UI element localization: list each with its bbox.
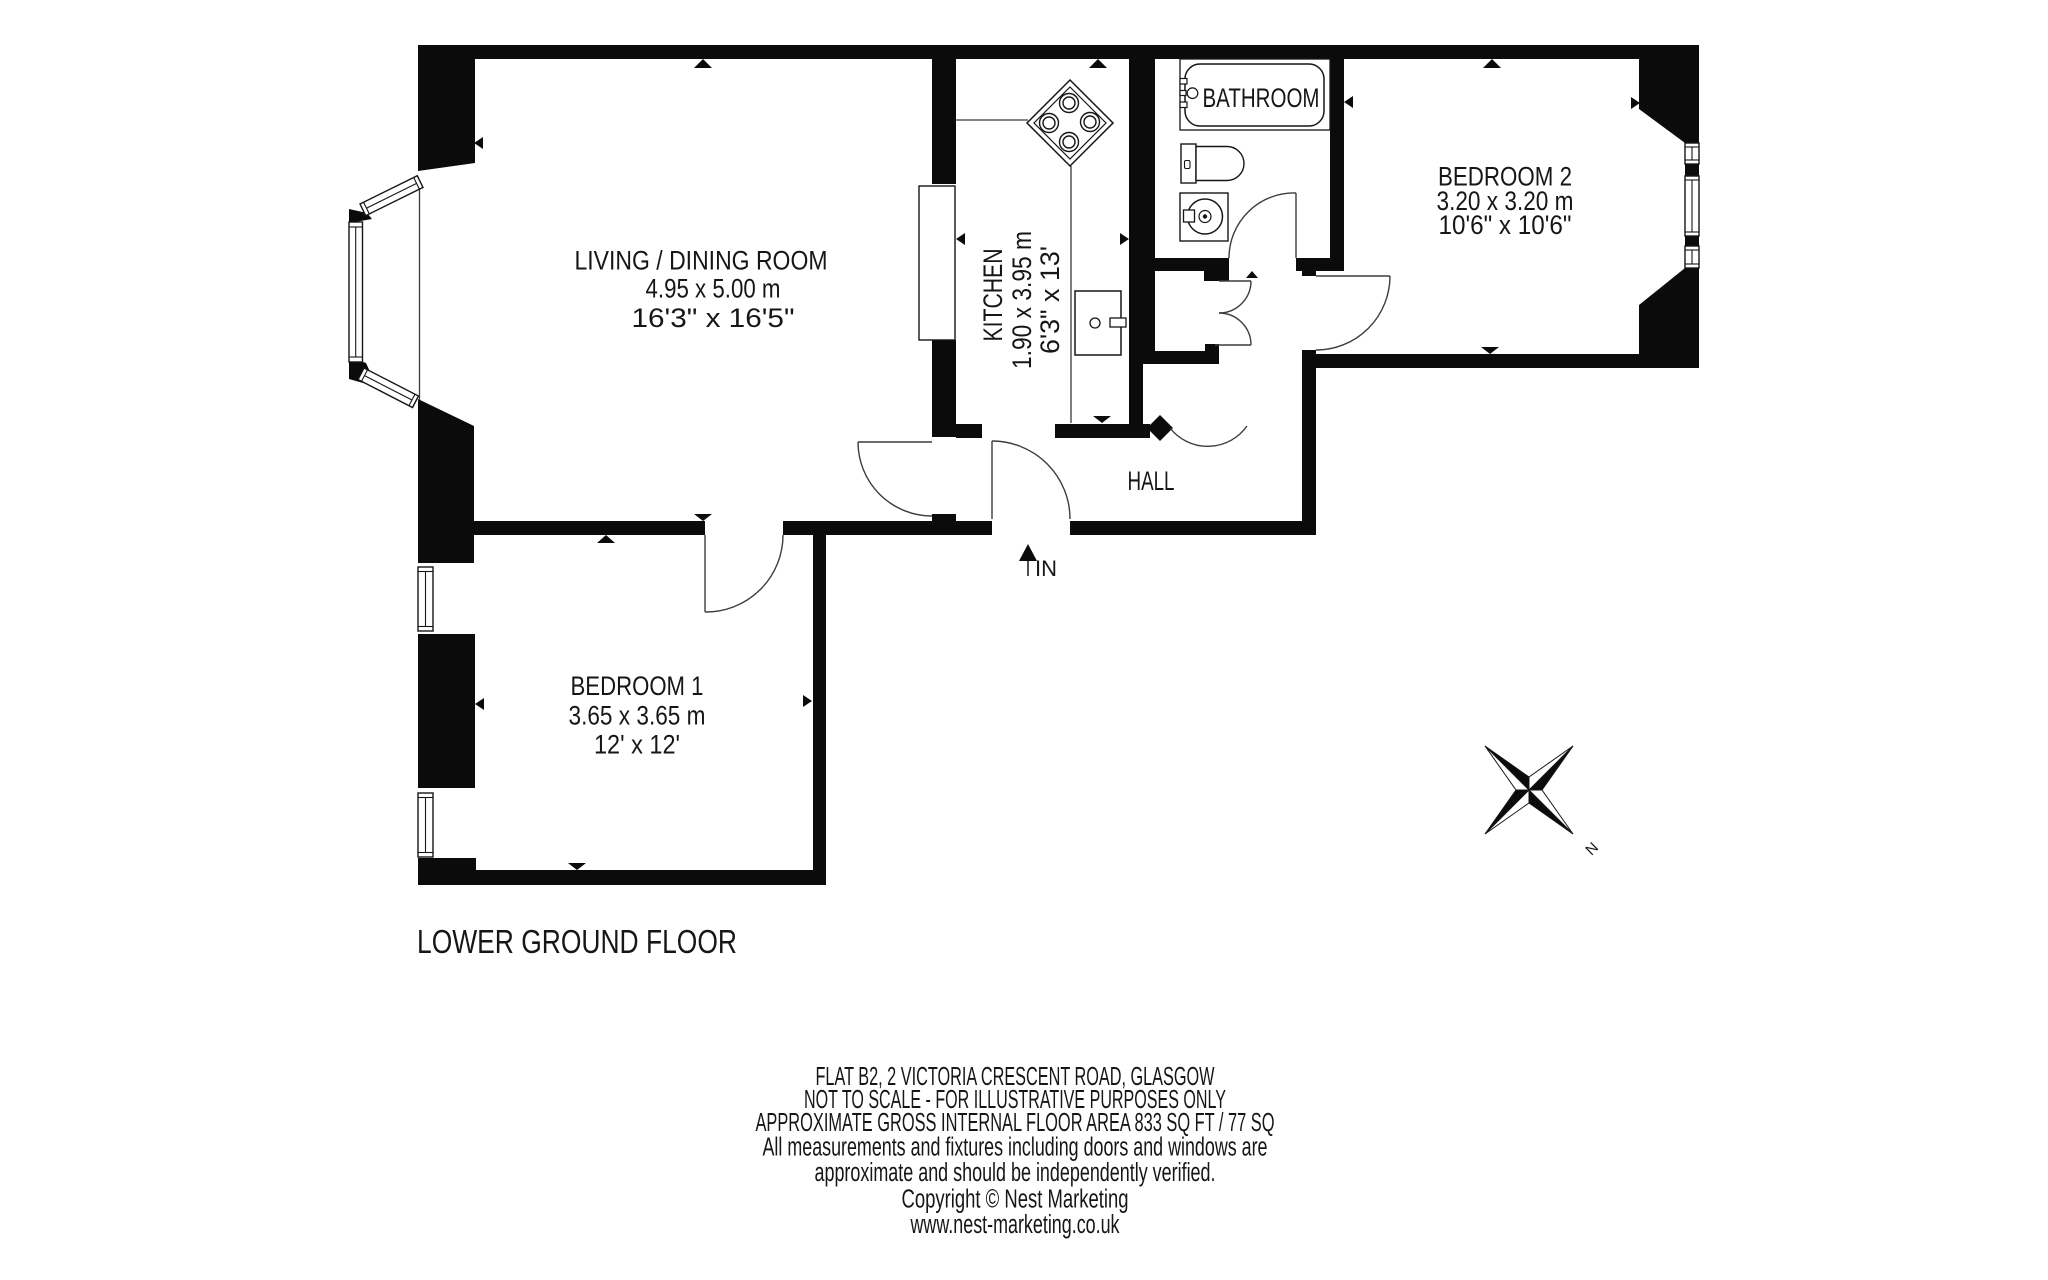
svg-text:16'3" x 16'5": 16'3" x 16'5" (632, 303, 795, 333)
svg-text:HALL: HALL (1128, 466, 1175, 496)
svg-text:3.65 x 3.65 m: 3.65 x 3.65 m (569, 701, 706, 731)
svg-text:4.95 x 5.00 m: 4.95 x 5.00 m (646, 274, 781, 304)
svg-text:All measurements and fixtures: All measurements and fixtures including … (763, 1134, 1268, 1162)
svg-text:BATHROOM: BATHROOM (1203, 83, 1320, 113)
svg-text:BEDROOM 1: BEDROOM 1 (571, 671, 704, 701)
svg-text:6'3" x 13': 6'3" x 13' (1035, 246, 1065, 354)
svg-text:IN: IN (1035, 556, 1057, 581)
svg-text:www.nest-marketing.co.uk: www.nest-marketing.co.uk (910, 1211, 1120, 1239)
svg-text:KITCHEN: KITCHEN (978, 249, 1008, 342)
svg-text:1.90 x 3.95 m: 1.90 x 3.95 m (1007, 231, 1037, 369)
svg-text:12' x 12': 12' x 12' (594, 730, 680, 760)
svg-text:10'6" x 10'6": 10'6" x 10'6" (1439, 210, 1572, 240)
svg-text:Copyright © Nest Marketing: Copyright © Nest Marketing (902, 1186, 1129, 1214)
svg-text:LIVING / DINING ROOM: LIVING / DINING ROOM (575, 246, 828, 276)
svg-text:approximate and should be inde: approximate and should be independently … (815, 1159, 1216, 1187)
svg-text:LOWER GROUND FLOOR: LOWER GROUND FLOOR (417, 923, 737, 960)
